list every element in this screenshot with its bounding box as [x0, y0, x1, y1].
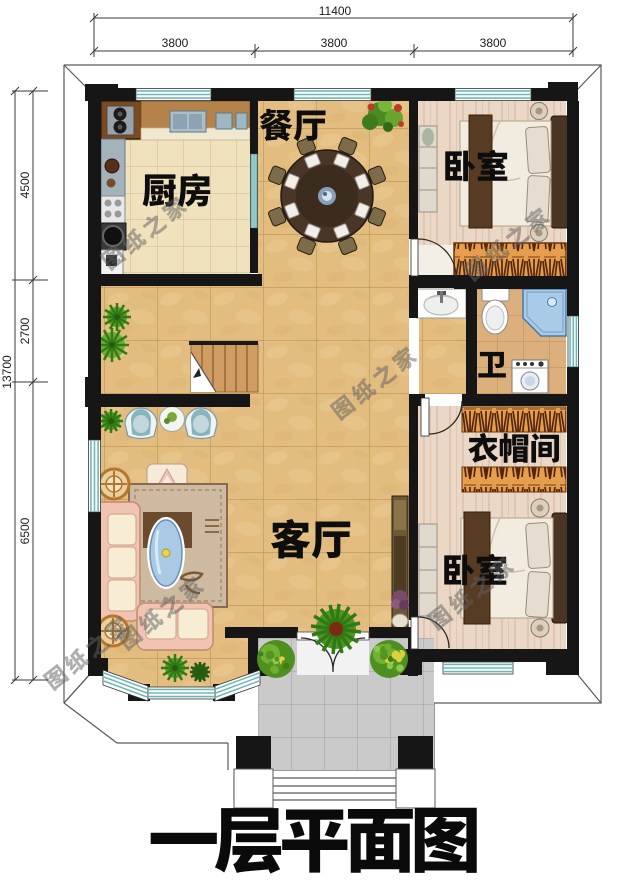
svg-text:3800: 3800 — [480, 36, 507, 50]
svg-text:6500: 6500 — [18, 517, 32, 544]
svg-text:4500: 4500 — [18, 171, 32, 198]
svg-text:2700: 2700 — [18, 317, 32, 344]
svg-text:11400: 11400 — [319, 4, 352, 18]
svg-text:13700: 13700 — [0, 355, 14, 389]
svg-text:3800: 3800 — [162, 36, 189, 50]
svg-text:3800: 3800 — [321, 36, 348, 50]
